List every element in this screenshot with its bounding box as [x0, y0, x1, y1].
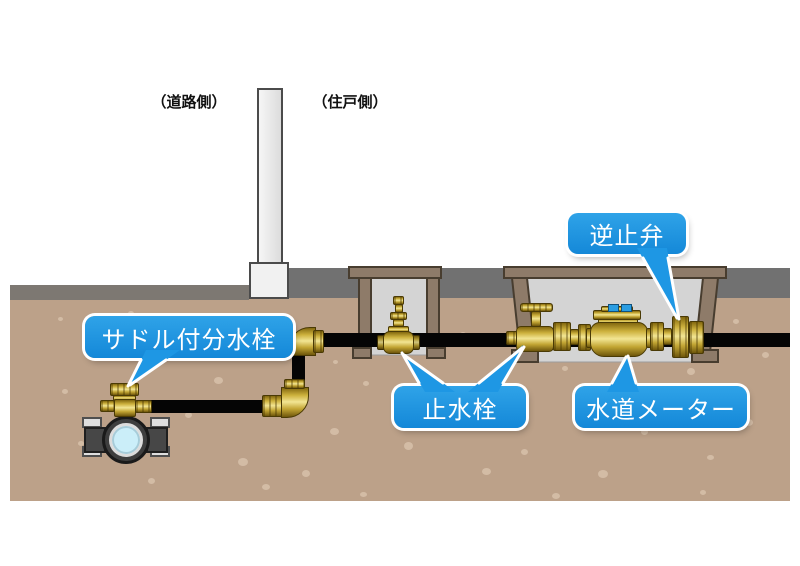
plumbing-diagram: （道路側） （住戸側）: [0, 0, 800, 566]
callout-tails: [0, 0, 800, 566]
